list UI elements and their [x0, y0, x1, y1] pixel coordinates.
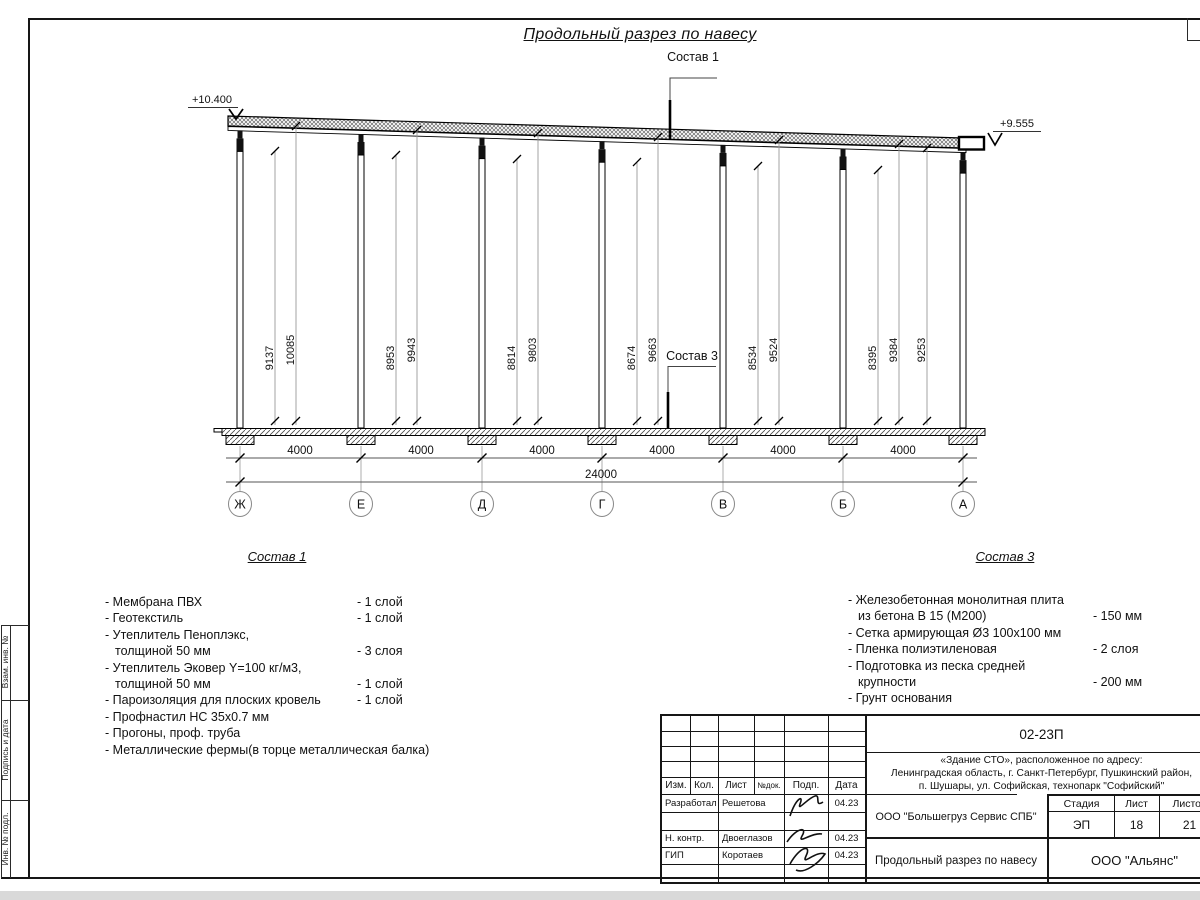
bay-dim-2: 4000 — [408, 445, 434, 457]
item-text: - Мембрана ПВХ — [105, 595, 202, 609]
axis-a: А — [959, 498, 968, 512]
item-amount: - 1 слой — [357, 676, 403, 692]
item-text: - Профнастил НС 35х0.7 мм — [105, 710, 269, 724]
bay-dim-4: 4000 — [649, 445, 675, 457]
list-item: крупности- 200 мм — [848, 674, 1188, 690]
axis-zh: Ж — [234, 498, 246, 512]
item-text: толщиной 50 мм — [105, 644, 211, 658]
vdim-9137: 9137 — [264, 346, 276, 370]
item-text: из бетона В 15 (М200) — [848, 609, 986, 623]
roof-end-beam — [959, 137, 984, 150]
column-a — [960, 152, 967, 428]
column-e — [358, 134, 365, 428]
tb-company: ООО "Большегруз Сервис СПБ" — [865, 796, 1047, 837]
bay-dim-3: 4000 — [529, 445, 555, 457]
item-amount: - 1 слой — [357, 594, 403, 610]
tb-name-reshetova: Решетова — [719, 794, 787, 812]
column-zh — [237, 130, 244, 428]
item-text: - Прогоны, проф. труба — [105, 726, 240, 740]
level-right-value: +9.555 — [1000, 118, 1034, 130]
list-item: толщиной 50 мм- 1 слой — [105, 676, 525, 692]
tb-date-2: 04.23 — [828, 830, 865, 847]
sostav1-title: Состав 1 — [197, 549, 357, 564]
total-dim: 24000 — [585, 469, 617, 481]
callout-sostav1-label: Состав 1 — [667, 50, 719, 64]
list-item: - Профнастил НС 35х0.7 мм — [105, 709, 525, 725]
vdim-10085: 10085 — [285, 335, 297, 366]
tb-date-1: 04.23 — [828, 794, 865, 812]
item-amount: - 2 слоя — [1093, 641, 1138, 657]
item-text: - Пленка полиэтиленовая — [848, 642, 997, 656]
address-line-3: п. Шушары, ул. Софийская, технопарк "Соф… — [865, 780, 1200, 793]
sostav3-title: Состав 3 — [925, 549, 1085, 564]
item-text: - Грунт основания — [848, 691, 952, 705]
tb-stage-value: ЭП — [1049, 812, 1114, 837]
vdim-8953: 8953 — [385, 346, 397, 370]
tb-role-nkontr: Н. контр. — [662, 830, 721, 847]
list-item: - Прогоны, проф. труба — [105, 725, 525, 741]
level-mark-left: +10.400 — [188, 94, 243, 119]
axis-b: Б — [839, 498, 847, 512]
vdim-9943: 9943 — [406, 338, 418, 362]
bay-dim-6: 4000 — [890, 445, 916, 457]
tb-role-gip: ГИП — [662, 847, 721, 864]
item-amount: - 150 мм — [1093, 608, 1142, 624]
tb-date-3: 04.23 — [828, 847, 865, 864]
tb-col-izm: Изм. — [662, 777, 690, 794]
vdim-9524: 9524 — [768, 338, 780, 362]
signature-nkontr-gip — [782, 824, 830, 876]
tb-org: ООО "Альянс" — [1049, 839, 1200, 882]
list-item: из бетона В 15 (М200)- 150 мм — [848, 608, 1188, 624]
bay-dimension-line: 4000 4000 4000 4000 4000 4000 — [226, 445, 977, 463]
column-v — [720, 145, 727, 428]
callout-sostav1: Состав 1 — [667, 50, 719, 140]
vdim-8674: 8674 — [626, 346, 638, 370]
level-mark-right: +9.555 — [988, 118, 1041, 145]
vdim-8395: 8395 — [867, 346, 879, 370]
item-amount: - 1 слой — [357, 692, 403, 708]
sostav3-list: - Железобетонная монолитная плита из бет… — [848, 592, 1188, 707]
callout-sostav3: Состав 3 — [666, 349, 718, 429]
roof-slab — [228, 116, 984, 153]
list-item: - Пароизоляция для плоских кровель- 1 сл… — [105, 692, 525, 708]
item-text: - Геотекстиль — [105, 611, 183, 625]
vdim-9803: 9803 — [527, 338, 539, 362]
axis-v: В — [719, 498, 727, 512]
tb-col-list: Лист — [718, 777, 754, 794]
column-b — [840, 149, 847, 429]
list-item: - Утеплитель Пеноплэкс, — [105, 627, 525, 643]
axis-d: Д — [478, 498, 487, 512]
signature-reshetova — [784, 788, 828, 824]
item-amount: - 1 слой — [357, 610, 403, 626]
item-text: - Подготовка из песка средней — [848, 659, 1025, 673]
item-text: - Пароизоляция для плоских кровель — [105, 693, 321, 707]
item-amount: - 200 мм — [1093, 674, 1142, 690]
list-item: - Сетка армирующая Ø3 100х100 мм — [848, 625, 1188, 641]
page-edge-shade — [0, 891, 1200, 900]
tb-col-data: Дата — [828, 777, 865, 794]
list-item: - Геотекстиль- 1 слой — [105, 610, 525, 626]
columns — [237, 130, 967, 428]
title-block: Изм. Кол. Лист №док. Подп. Дата Разработ… — [660, 714, 1200, 884]
tb-drawing-name: Продольный разрез по навесу — [865, 839, 1047, 882]
tb-name-dvoeglazov: Двоеглазов — [719, 830, 787, 847]
bay-dim-5: 4000 — [770, 445, 796, 457]
callout-sostav3-label: Состав 3 — [666, 349, 718, 363]
list-item: - Железобетонная монолитная плита — [848, 592, 1188, 608]
list-item: - Подготовка из песка средней — [848, 658, 1188, 674]
list-item: - Утеплитель Эковер Y=100 кг/м3, — [105, 660, 525, 676]
bay-dim-1: 4000 — [287, 445, 313, 457]
sostav1-list: - Мембрана ПВХ- 1 слой - Геотекстиль- 1 … — [105, 594, 525, 758]
item-text: толщиной 50 мм — [105, 677, 211, 691]
item-text: крупности — [848, 675, 916, 689]
axis-g: Г — [599, 498, 606, 512]
ground-slab — [214, 429, 985, 445]
tb-sheet-label: Лист — [1114, 796, 1159, 811]
item-text: - Утеплитель Пеноплэкс, — [105, 628, 249, 642]
tb-sheets-value: 21 — [1159, 812, 1200, 837]
tb-stage-label: Стадия — [1049, 796, 1114, 811]
address-line-2: Ленинградская область, г. Санкт-Петербур… — [865, 767, 1200, 780]
vdim-8814: 8814 — [506, 346, 518, 370]
list-item: - Металлические фермы(в торце металличес… — [105, 742, 525, 758]
tb-col-ndok: №док. — [754, 777, 784, 794]
address-line-1: «Здание СТО», расположенное по адресу: — [865, 754, 1200, 767]
tb-role-razrabotal: Разработал — [662, 794, 721, 812]
column-d — [479, 138, 486, 428]
tb-col-kol: Кол. — [690, 777, 718, 794]
tb-address: «Здание СТО», расположенное по адресу: Л… — [865, 753, 1200, 795]
item-text: - Железобетонная монолитная плита — [848, 593, 1064, 607]
item-amount: - 3 слоя — [357, 643, 402, 659]
tb-doc-number: 02-23П — [865, 716, 1200, 752]
vdim-9384: 9384 — [888, 338, 900, 362]
tb-sheet-value: 18 — [1114, 812, 1159, 837]
vdim-8534: 8534 — [747, 346, 759, 370]
list-item: толщиной 50 мм- 3 слоя — [105, 643, 525, 659]
list-item: - Мембрана ПВХ- 1 слой — [105, 594, 525, 610]
axis-e: Е — [357, 498, 365, 512]
vdim-9253: 9253 — [916, 338, 928, 362]
grid-bubbles: Ж Е Д Г В Б А — [229, 492, 975, 517]
tb-name-korotaev: Коротаев — [719, 847, 787, 864]
level-left-value: +10.400 — [192, 94, 232, 106]
list-item: - Грунт основания — [848, 690, 1188, 706]
column-g — [599, 141, 606, 428]
list-item: - Пленка полиэтиленовая- 2 слоя — [848, 641, 1188, 657]
vdim-9663: 9663 — [647, 338, 659, 362]
item-text: - Утеплитель Эковер Y=100 кг/м3, — [105, 661, 301, 675]
total-dimension-line: 24000 — [226, 469, 977, 487]
item-text: - Металлические фермы(в торце металличес… — [105, 743, 429, 757]
item-text: - Сетка армирующая Ø3 100х100 мм — [848, 626, 1061, 640]
tb-sheets-label: Листов — [1159, 796, 1200, 811]
